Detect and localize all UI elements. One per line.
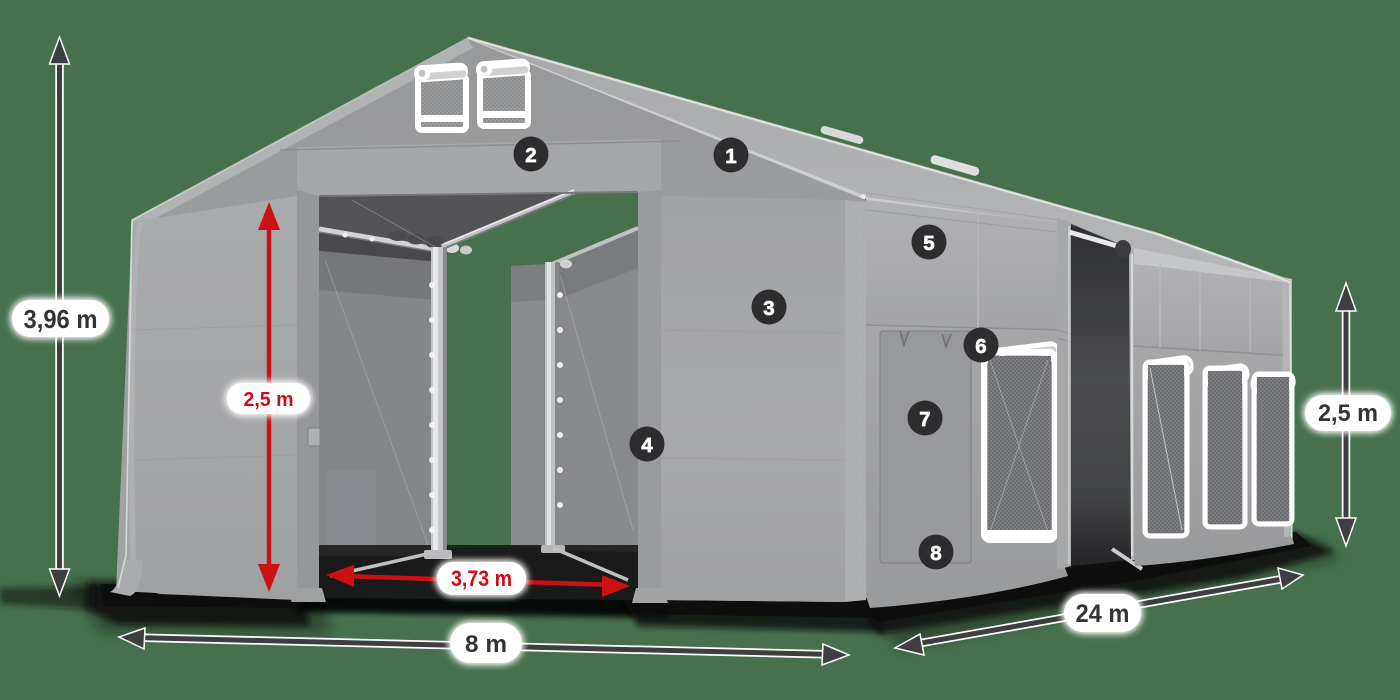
svg-text:2,5 m: 2,5 m — [244, 389, 294, 411]
svg-text:3: 3 — [763, 297, 774, 320]
svg-text:8 m: 8 m — [465, 631, 507, 658]
svg-text:4: 4 — [641, 434, 653, 457]
svg-text:6: 6 — [975, 335, 986, 358]
svg-text:2: 2 — [525, 144, 536, 167]
svg-text:24 m: 24 m — [1076, 600, 1130, 628]
svg-text:5: 5 — [923, 232, 934, 255]
svg-text:1: 1 — [725, 145, 736, 168]
svg-text:3,96 m: 3,96 m — [24, 304, 98, 334]
svg-text:7: 7 — [919, 408, 930, 431]
svg-text:3,73 m: 3,73 m — [451, 566, 512, 591]
svg-text:8: 8 — [930, 542, 941, 565]
svg-text:2,5 m: 2,5 m — [1318, 400, 1378, 427]
